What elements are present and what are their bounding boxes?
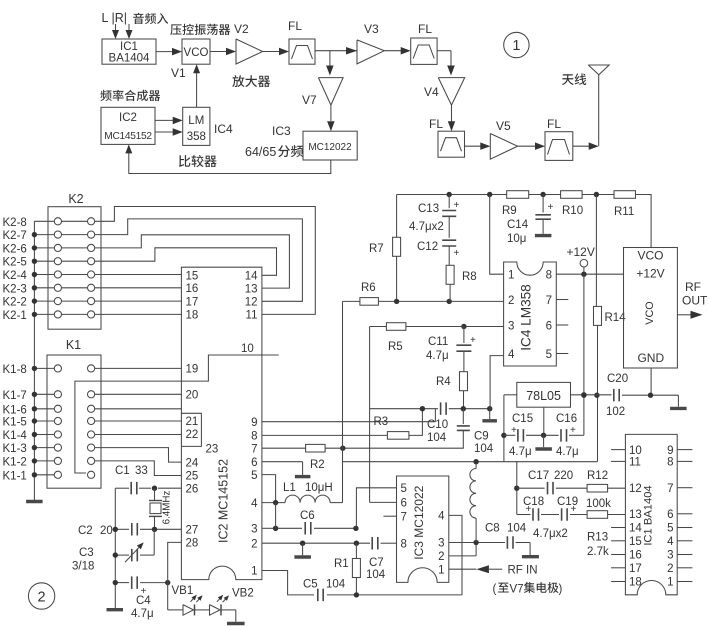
svg-text:K1-2: K1-2 bbox=[3, 456, 27, 468]
svg-text:4.7μ: 4.7μ bbox=[131, 608, 154, 620]
svg-text:5: 5 bbox=[251, 470, 257, 482]
svg-text:V5: V5 bbox=[496, 119, 511, 133]
svg-text:10μ: 10μ bbox=[507, 233, 526, 245]
svg-text:358: 358 bbox=[187, 131, 206, 143]
svg-text:IC4 LM358: IC4 LM358 bbox=[519, 284, 534, 351]
svg-text:6: 6 bbox=[546, 320, 552, 332]
svg-text:15: 15 bbox=[186, 270, 199, 282]
svg-text:K1-8: K1-8 bbox=[3, 364, 27, 376]
svg-text:13: 13 bbox=[629, 509, 642, 521]
svg-text:R14: R14 bbox=[605, 312, 627, 324]
svg-text:FL: FL bbox=[418, 22, 432, 36]
svg-text:C3: C3 bbox=[79, 547, 94, 559]
svg-text:IC1 BA1404: IC1 BA1404 bbox=[643, 485, 655, 545]
svg-text:7: 7 bbox=[401, 511, 407, 523]
svg-text:4: 4 bbox=[438, 511, 445, 523]
svg-text:RF IN: RF IN bbox=[508, 565, 538, 577]
svg-text:K1-3: K1-3 bbox=[3, 443, 27, 455]
svg-text:+: + bbox=[570, 425, 576, 436]
svg-text:9: 9 bbox=[667, 445, 673, 457]
svg-text:C16: C16 bbox=[556, 413, 577, 425]
svg-text:BA1404: BA1404 bbox=[109, 53, 151, 65]
svg-text:C8: C8 bbox=[485, 523, 500, 535]
svg-text:12: 12 bbox=[245, 297, 258, 309]
svg-text:FL: FL bbox=[547, 117, 561, 131]
svg-text:3: 3 bbox=[508, 320, 514, 332]
svg-text:K2-3: K2-3 bbox=[3, 283, 27, 295]
svg-text:104: 104 bbox=[507, 523, 527, 535]
svg-text:20: 20 bbox=[186, 390, 199, 402]
svg-text:FL: FL bbox=[288, 19, 302, 33]
svg-text:): ) bbox=[559, 584, 563, 596]
svg-text:8: 8 bbox=[667, 457, 673, 469]
svg-text:K2-5: K2-5 bbox=[3, 257, 27, 269]
svg-text:2: 2 bbox=[667, 563, 673, 575]
svg-text:K1-7: K1-7 bbox=[3, 390, 27, 402]
svg-text:V7: V7 bbox=[302, 93, 317, 107]
svg-text:VCO: VCO bbox=[644, 301, 656, 324]
svg-text:K2-1: K2-1 bbox=[3, 310, 27, 322]
svg-text:16: 16 bbox=[186, 283, 199, 295]
svg-text:5: 5 bbox=[546, 349, 552, 361]
svg-text:1: 1 bbox=[512, 38, 520, 54]
svg-text:19: 19 bbox=[186, 364, 199, 376]
svg-text:4: 4 bbox=[251, 498, 258, 510]
svg-text:C17: C17 bbox=[528, 470, 549, 482]
svg-text:C15: C15 bbox=[512, 413, 533, 425]
svg-text:6: 6 bbox=[251, 457, 257, 469]
svg-text:K1-5: K1-5 bbox=[3, 417, 27, 429]
svg-text:R3: R3 bbox=[374, 416, 389, 428]
svg-text:102: 102 bbox=[606, 406, 625, 418]
svg-text:V3: V3 bbox=[364, 22, 379, 36]
svg-text:C6: C6 bbox=[300, 510, 315, 522]
svg-text:OUT: OUT bbox=[682, 294, 708, 308]
svg-text:C1: C1 bbox=[115, 465, 130, 477]
svg-text:K1-6: K1-6 bbox=[3, 404, 27, 416]
svg-text:18: 18 bbox=[629, 577, 642, 589]
svg-text:8: 8 bbox=[401, 538, 407, 550]
svg-text:2: 2 bbox=[508, 295, 514, 307]
svg-text:V2: V2 bbox=[234, 22, 249, 36]
svg-text:10μH: 10μH bbox=[305, 482, 333, 494]
svg-text:1: 1 bbox=[251, 566, 257, 578]
svg-text:104: 104 bbox=[474, 443, 494, 455]
svg-text:14: 14 bbox=[245, 271, 258, 283]
svg-text:17: 17 bbox=[629, 563, 642, 575]
svg-text:64/65: 64/65 bbox=[245, 145, 276, 159]
svg-text:104: 104 bbox=[366, 569, 386, 581]
svg-text:K2-2: K2-2 bbox=[3, 297, 27, 309]
svg-text:4: 4 bbox=[508, 349, 515, 361]
svg-text:33: 33 bbox=[135, 465, 148, 477]
svg-text:8: 8 bbox=[546, 270, 552, 282]
svg-text:15: 15 bbox=[629, 536, 642, 548]
svg-text:L1: L1 bbox=[283, 482, 296, 494]
svg-text:L |R|: L |R| bbox=[102, 11, 127, 25]
svg-text:4.7μ: 4.7μ bbox=[426, 350, 449, 362]
svg-text:K2-7: K2-7 bbox=[3, 230, 27, 242]
svg-text:5: 5 bbox=[667, 523, 673, 535]
svg-text:VB2: VB2 bbox=[232, 587, 254, 599]
svg-text:+12V: +12V bbox=[636, 267, 664, 281]
svg-text:C9: C9 bbox=[474, 431, 489, 443]
svg-text:220: 220 bbox=[554, 470, 573, 482]
svg-text:R2: R2 bbox=[310, 459, 325, 471]
svg-text:4: 4 bbox=[667, 536, 674, 548]
svg-text:C20: C20 bbox=[607, 373, 628, 385]
svg-text:R8: R8 bbox=[462, 271, 477, 283]
svg-text:R5: R5 bbox=[388, 341, 403, 353]
svg-text:R9: R9 bbox=[502, 205, 517, 217]
svg-text:+: + bbox=[454, 248, 460, 259]
svg-text:2.7k: 2.7k bbox=[587, 546, 609, 558]
svg-text:IC4: IC4 bbox=[214, 122, 233, 136]
svg-text:R13: R13 bbox=[587, 532, 608, 544]
svg-text:1: 1 bbox=[438, 564, 444, 576]
svg-text:100k: 100k bbox=[586, 498, 611, 510]
svg-text:VB1: VB1 bbox=[172, 585, 194, 597]
svg-text:V7: V7 bbox=[510, 584, 524, 596]
svg-text:IC3: IC3 bbox=[272, 124, 291, 138]
svg-text:K2-8: K2-8 bbox=[3, 217, 27, 229]
svg-text:1: 1 bbox=[667, 577, 673, 589]
svg-text:9: 9 bbox=[251, 417, 257, 429]
svg-text:20: 20 bbox=[100, 525, 113, 537]
svg-text:IC2: IC2 bbox=[119, 112, 137, 124]
svg-text:K2-6: K2-6 bbox=[3, 243, 27, 255]
svg-text:7: 7 bbox=[667, 483, 673, 495]
svg-text:7: 7 bbox=[546, 295, 552, 307]
svg-text:IC1: IC1 bbox=[120, 41, 138, 53]
svg-text:+: + bbox=[511, 425, 517, 436]
svg-text:VCO: VCO bbox=[637, 249, 663, 263]
svg-text:C7: C7 bbox=[369, 557, 384, 569]
svg-text:VCO: VCO bbox=[184, 47, 209, 59]
svg-text:FL: FL bbox=[429, 117, 443, 131]
svg-text:8: 8 bbox=[251, 431, 257, 443]
svg-text:2: 2 bbox=[251, 538, 257, 550]
svg-text:104: 104 bbox=[326, 579, 346, 591]
svg-text:6.4MHz: 6.4MHz bbox=[162, 491, 173, 525]
svg-text:+: + bbox=[548, 202, 554, 213]
svg-text:25: 25 bbox=[186, 471, 199, 483]
svg-text:MC12022: MC12022 bbox=[308, 142, 352, 153]
svg-text:16: 16 bbox=[629, 550, 642, 562]
svg-text:C5: C5 bbox=[303, 579, 318, 591]
svg-text:13: 13 bbox=[245, 283, 258, 295]
svg-text:3: 3 bbox=[438, 538, 444, 550]
svg-text:+: + bbox=[454, 200, 460, 211]
svg-text:78L05: 78L05 bbox=[526, 389, 561, 403]
svg-text:5: 5 bbox=[401, 483, 407, 495]
svg-text:4.7μx2: 4.7μx2 bbox=[409, 221, 444, 233]
svg-text:11: 11 bbox=[246, 310, 258, 322]
svg-text:K2: K2 bbox=[68, 192, 83, 206]
svg-text:6: 6 bbox=[667, 509, 673, 521]
svg-text:C12: C12 bbox=[417, 241, 438, 253]
svg-text:K1-1: K1-1 bbox=[3, 470, 27, 482]
svg-text:GND: GND bbox=[637, 351, 664, 365]
svg-text:K2-4: K2-4 bbox=[3, 270, 28, 282]
svg-text:R6: R6 bbox=[361, 282, 376, 294]
svg-text:12: 12 bbox=[629, 483, 642, 495]
svg-text:C14: C14 bbox=[507, 219, 529, 231]
svg-text:R12: R12 bbox=[587, 470, 608, 482]
svg-text:V1: V1 bbox=[171, 66, 186, 80]
svg-text:4.7μx2: 4.7μx2 bbox=[533, 528, 568, 540]
svg-text:R4: R4 bbox=[436, 376, 451, 388]
svg-text:MC145152: MC145152 bbox=[104, 131, 152, 142]
svg-text:18: 18 bbox=[186, 310, 199, 322]
svg-text:K1: K1 bbox=[66, 338, 81, 352]
svg-text:4.7μ: 4.7μ bbox=[556, 446, 579, 458]
svg-text:21: 21 bbox=[186, 416, 199, 428]
svg-text:C19: C19 bbox=[557, 496, 578, 508]
svg-text:14: 14 bbox=[629, 523, 642, 535]
svg-text:3/18: 3/18 bbox=[72, 561, 94, 573]
svg-text:11: 11 bbox=[629, 457, 641, 469]
svg-text:C2: C2 bbox=[78, 525, 93, 537]
svg-text:R11: R11 bbox=[614, 206, 634, 218]
svg-text:IC3 MC12022: IC3 MC12022 bbox=[412, 485, 426, 559]
svg-text:22: 22 bbox=[186, 429, 199, 441]
svg-text:2: 2 bbox=[438, 551, 444, 563]
svg-text:28: 28 bbox=[186, 538, 199, 550]
svg-text:23: 23 bbox=[206, 444, 219, 456]
svg-text:4.7μ: 4.7μ bbox=[509, 446, 532, 458]
svg-text:C10: C10 bbox=[427, 419, 448, 431]
svg-text:C11: C11 bbox=[428, 336, 448, 348]
svg-text:6: 6 bbox=[401, 498, 407, 510]
svg-text:27: 27 bbox=[186, 525, 199, 537]
svg-text:R7: R7 bbox=[369, 243, 384, 255]
svg-text:24: 24 bbox=[186, 457, 199, 469]
svg-text:LM: LM bbox=[188, 115, 204, 127]
svg-text:104: 104 bbox=[427, 432, 447, 444]
svg-text:1: 1 bbox=[508, 270, 514, 282]
svg-text:3: 3 bbox=[667, 550, 673, 562]
svg-text:+: + bbox=[470, 335, 476, 346]
svg-text:2: 2 bbox=[38, 590, 46, 606]
svg-text:7: 7 bbox=[251, 443, 257, 455]
svg-text:10: 10 bbox=[629, 445, 642, 457]
svg-text:C13: C13 bbox=[418, 203, 439, 215]
svg-text:R1: R1 bbox=[334, 558, 349, 570]
svg-text:C18: C18 bbox=[523, 496, 544, 508]
svg-text:R10: R10 bbox=[562, 205, 583, 217]
svg-text:26: 26 bbox=[186, 483, 199, 495]
svg-text:+: + bbox=[141, 586, 147, 597]
svg-text:3: 3 bbox=[251, 524, 257, 536]
svg-text:(: ( bbox=[493, 584, 497, 596]
svg-text:V4: V4 bbox=[424, 85, 439, 99]
svg-text:17: 17 bbox=[186, 296, 199, 308]
svg-text:+12V: +12V bbox=[567, 245, 595, 259]
svg-text:10: 10 bbox=[241, 343, 254, 355]
svg-text:RF: RF bbox=[685, 280, 701, 294]
svg-text:IC2 MC145152: IC2 MC145152 bbox=[217, 459, 231, 543]
svg-text:K1-4: K1-4 bbox=[3, 430, 28, 442]
